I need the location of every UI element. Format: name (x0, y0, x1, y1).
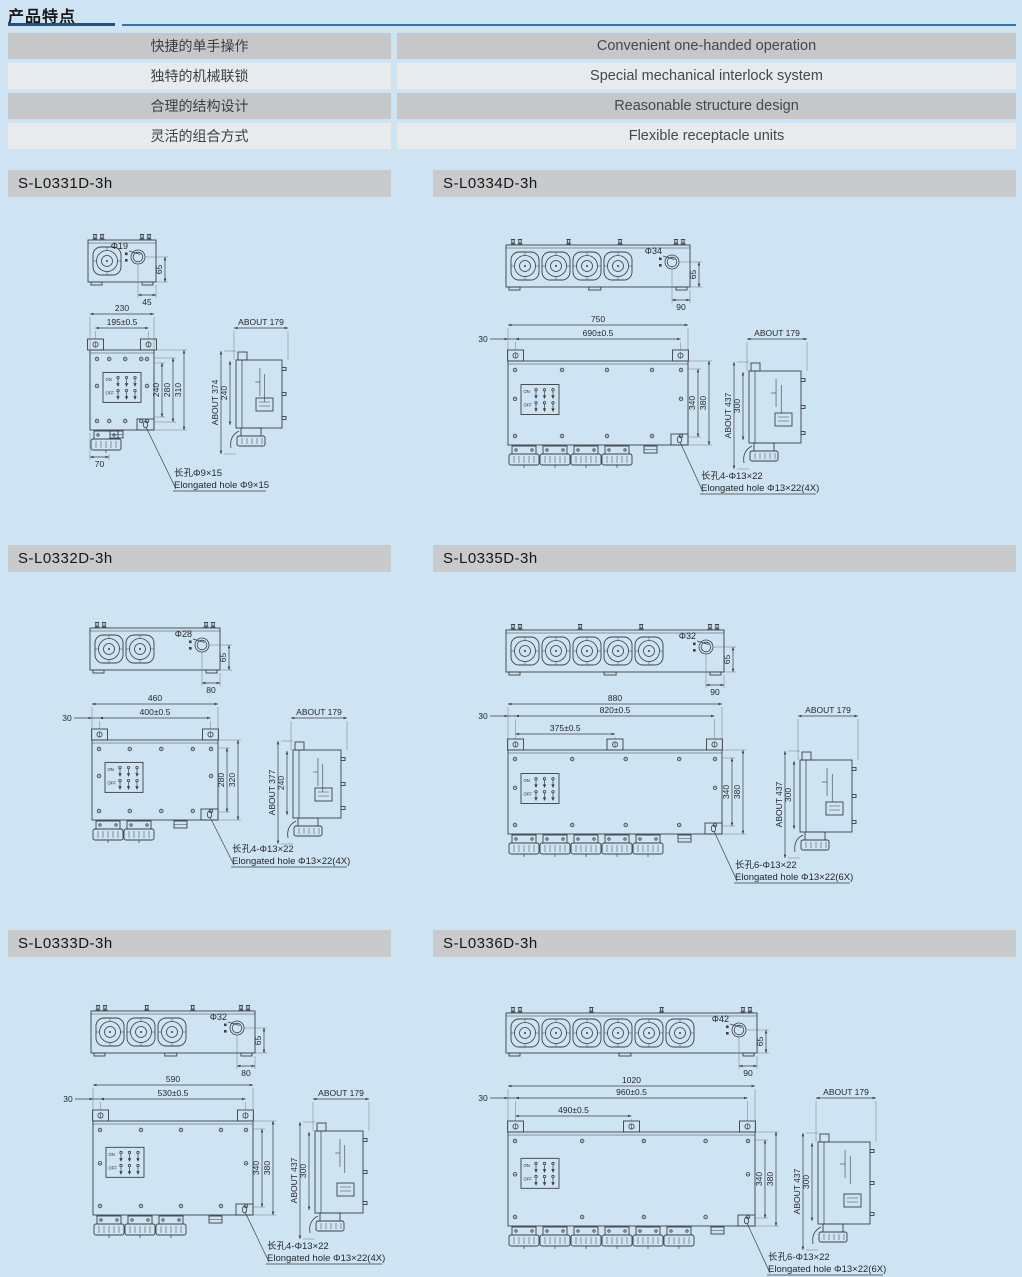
model-name: S-L0335D-3h (443, 550, 538, 567)
model-header: S-L0335D-3h (433, 545, 1016, 572)
dim-label: 240 (151, 383, 161, 397)
dim-label: 长孔6-Φ13×22 (735, 859, 797, 871)
title-underline-extension (122, 24, 1016, 26)
feature-en: Convenient one-handed operation (397, 33, 1016, 59)
dim-label: 880 (608, 693, 622, 703)
feature-row: 快捷的单手操作 Convenient one-handed operation (0, 33, 1022, 59)
dim-label: 30 (478, 1093, 488, 1103)
dim-label: 400±0.5 (140, 707, 171, 717)
dim-label: 310 (173, 383, 183, 397)
dim-label: 320 (227, 773, 237, 787)
dim-label: 340 (754, 1172, 764, 1186)
dim-label: 340 (687, 396, 697, 410)
dim-label: 380 (732, 785, 742, 799)
dim-label: Φ42 (712, 1014, 729, 1024)
dim-label: ABOUT 179 (296, 707, 342, 717)
dim-label: ON (524, 778, 530, 783)
dim-label: ON (109, 1152, 115, 1157)
technical-drawing: Φ346590ONOFF750690±0.530340380长孔4-Φ13×22… (433, 197, 1016, 540)
feature-en: Flexible receptacle units (397, 123, 1016, 149)
dim-label: 300 (801, 1175, 811, 1189)
dim-label: 460 (148, 693, 162, 703)
technical-drawing: Φ426590ONOFF1020960±0.5490±0.530340380长孔… (433, 957, 1016, 1277)
dim-label: Φ32 (210, 1012, 227, 1022)
dim-label: ABOUT 179 (823, 1087, 869, 1097)
dim-label: ABOUT 179 (238, 317, 284, 327)
dim-label: 490±0.5 (558, 1105, 589, 1115)
model-name: S-L0333D-3h (18, 935, 113, 952)
model-header: S-L0332D-3h (8, 545, 391, 572)
dim-label: 340 (721, 785, 731, 799)
dim-label: ON (106, 377, 112, 382)
dim-label: 375±0.5 (550, 723, 581, 733)
model-drawing-svg: Φ286580ONOFF460400±0.530280320长孔4-Φ13×22… (8, 572, 391, 915)
dim-label: Elongated hole Φ13×22(4X) (232, 856, 350, 867)
dim-label: 750 (591, 314, 605, 324)
dim-label: OFF (524, 1176, 533, 1181)
dim-label: 65 (253, 1036, 263, 1046)
dim-label: 30 (63, 1094, 73, 1104)
model-drawing-svg: Φ326580ONOFF590530±0.530340380长孔4-Φ13×22… (8, 957, 391, 1277)
dim-label: ON (524, 1163, 530, 1168)
dim-label: Elongated hole Φ13×22(4X) (701, 483, 819, 494)
dim-label: 80 (241, 1068, 251, 1078)
feature-row: 合理的结构设计 Reasonable structure design (0, 93, 1022, 119)
model-drawing-svg: Φ196545ONOFF230195±0.524028031070长孔Φ9×15… (8, 197, 391, 540)
dim-label: OFF (106, 390, 115, 395)
dim-label: Φ34 (645, 246, 662, 256)
feature-zh: 快捷的单手操作 (8, 33, 391, 59)
model-header: S-L0333D-3h (8, 930, 391, 957)
dim-label: 380 (698, 396, 708, 410)
dim-label: 90 (743, 1068, 753, 1078)
dim-label: 90 (676, 302, 686, 312)
technical-drawing: Φ196545ONOFF230195±0.524028031070长孔Φ9×15… (8, 197, 391, 540)
dim-label: 380 (765, 1172, 775, 1186)
dim-label: 长孔4-Φ13×22 (267, 1240, 329, 1252)
model-drawing-svg: Φ326590ONOFF880820±0.5375±0.530340380长孔6… (433, 572, 1016, 915)
dim-label: 960±0.5 (616, 1087, 647, 1097)
feature-en: Special mechanical interlock system (397, 63, 1016, 89)
dim-label: 长孔6-Φ13×22 (768, 1251, 830, 1263)
dim-label: ON (524, 389, 530, 394)
dim-label: 690±0.5 (583, 328, 614, 338)
model-drawing-svg: Φ426590ONOFF1020960±0.5490±0.530340380长孔… (433, 957, 1016, 1277)
dim-label: 380 (262, 1161, 272, 1175)
technical-drawing: Φ326580ONOFF590530±0.530340380长孔4-Φ13×22… (8, 957, 391, 1277)
feature-row: 灵活的组合方式 Flexible receptacle units (0, 123, 1022, 149)
dim-label: 820±0.5 (600, 705, 631, 715)
dim-label: 70 (95, 459, 105, 469)
dim-label: 590 (166, 1074, 180, 1084)
dim-label: Φ28 (175, 629, 192, 639)
dim-label: OFF (524, 403, 533, 408)
dim-label: OFF (524, 792, 533, 797)
feature-zh: 灵活的组合方式 (8, 123, 391, 149)
model-name: S-L0336D-3h (443, 935, 538, 952)
model-name: S-L0332D-3h (18, 550, 113, 567)
feature-en: Reasonable structure design (397, 93, 1016, 119)
dim-label: 90 (710, 687, 720, 697)
dim-label: 80 (206, 685, 216, 695)
dim-label: 195±0.5 (107, 317, 138, 327)
dim-label: 30 (62, 713, 72, 723)
dim-label: Elongated hole Φ13×22(6X) (735, 872, 853, 883)
model-header: S-L0331D-3h (8, 170, 391, 197)
dim-label: 240 (219, 386, 229, 400)
dim-label: Φ19 (111, 241, 128, 251)
dim-label: 65 (154, 265, 164, 275)
dim-label: 30 (478, 711, 488, 721)
model-name: S-L0331D-3h (18, 175, 113, 192)
dim-label: 300 (783, 788, 793, 802)
feature-zh: 合理的结构设计 (8, 93, 391, 119)
dim-label: 530±0.5 (158, 1088, 189, 1098)
dim-label: 长孔Φ9×15 (174, 467, 222, 479)
model-name: S-L0334D-3h (443, 175, 538, 192)
feature-zh: 独特的机械联锁 (8, 63, 391, 89)
dim-label: 65 (218, 653, 228, 663)
dim-label: 长孔4-Φ13×22 (701, 470, 763, 482)
dim-label: 65 (722, 655, 732, 665)
dim-label: OFF (108, 780, 117, 785)
dim-label: 65 (688, 270, 698, 280)
feature-row: 独特的机械联锁 Special mechanical interlock sys… (0, 63, 1022, 89)
dim-label: 300 (298, 1164, 308, 1178)
dim-label: ABOUT 179 (318, 1088, 364, 1098)
dim-label: Elongated hole Φ13×22(6X) (768, 1264, 886, 1275)
model-header: S-L0336D-3h (433, 930, 1016, 957)
dim-label: ABOUT 179 (805, 705, 851, 715)
dim-label: 280 (162, 383, 172, 397)
dim-label: 1020 (622, 1075, 641, 1085)
dim-label: 65 (755, 1037, 765, 1047)
technical-drawing: Φ286580ONOFF460400±0.530280320长孔4-Φ13×22… (8, 572, 391, 915)
dim-label: 280 (216, 773, 226, 787)
dim-label: Elongated hole Φ9×15 (174, 480, 269, 491)
dim-label: 240 (276, 776, 286, 790)
dim-label: Φ32 (679, 631, 696, 641)
model-header: S-L0334D-3h (433, 170, 1016, 197)
dim-label: 30 (478, 334, 488, 344)
dim-label: 340 (251, 1161, 261, 1175)
dim-label: 230 (115, 303, 129, 313)
dim-label: ABOUT 179 (754, 328, 800, 338)
dim-label: ON (108, 767, 114, 772)
dim-label: Elongated hole Φ13×22(4X) (267, 1253, 385, 1264)
dim-label: 45 (142, 297, 152, 307)
model-drawing-svg: Φ346590ONOFF750690±0.530340380长孔4-Φ13×22… (433, 197, 1016, 540)
title-underline (8, 23, 115, 26)
dim-label: OFF (109, 1165, 118, 1170)
technical-drawing: Φ326590ONOFF880820±0.5375±0.530340380长孔6… (433, 572, 1016, 915)
dim-label: 长孔4-Φ13×22 (232, 843, 294, 855)
dim-label: 300 (732, 399, 742, 413)
